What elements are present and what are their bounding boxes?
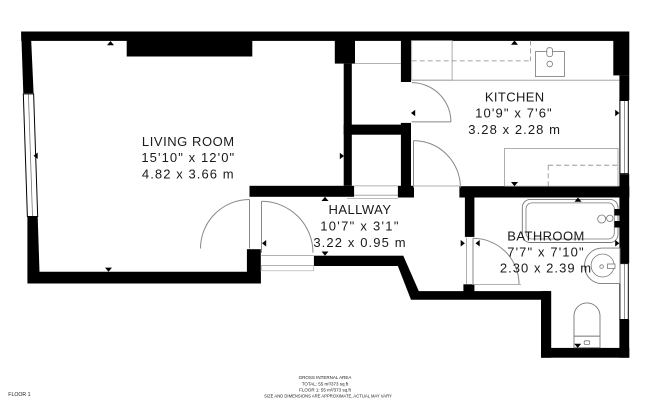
svg-text:2.30 x 2.39 m: 2.30 x 2.39 m [500, 260, 592, 275]
svg-text:3.28 x 2.28 m: 3.28 x 2.28 m [468, 122, 561, 137]
svg-text:FLOOR 1: FLOOR 1 [8, 392, 30, 398]
svg-text:10'9" x 7'6": 10'9" x 7'6" [475, 106, 553, 121]
svg-text:FLOOR 1: 55 m²/373 sq.ft: FLOOR 1: 55 m²/373 sq.ft [299, 387, 352, 392]
svg-text:LIVING ROOM: LIVING ROOM [142, 134, 235, 149]
svg-text:HALLWAY: HALLWAY [329, 202, 392, 217]
svg-text:KITCHEN: KITCHEN [485, 90, 545, 105]
svg-text:BATHROOM: BATHROOM [507, 228, 584, 243]
svg-text:3.22 x 0.95 m: 3.22 x 0.95 m [313, 235, 406, 250]
svg-text:TOTAL: 55 m²/373 sq.ft: TOTAL: 55 m²/373 sq.ft [302, 382, 349, 387]
svg-text:4.82 x 3.66 m: 4.82 x 3.66 m [142, 167, 235, 182]
svg-text:GROSS INTERNAL AREA: GROSS INTERNAL AREA [299, 375, 352, 380]
svg-text:10'7" x 3'1": 10'7" x 3'1" [320, 219, 399, 234]
svg-text:15'10" x 12'0": 15'10" x 12'0" [141, 150, 235, 165]
svg-text:SIZE AND DIMENSIONS ARE APPROX: SIZE AND DIMENSIONS ARE APPROXIMATE, ACT… [264, 394, 392, 399]
svg-text:7'7" x 7'10": 7'7" x 7'10" [507, 244, 585, 259]
